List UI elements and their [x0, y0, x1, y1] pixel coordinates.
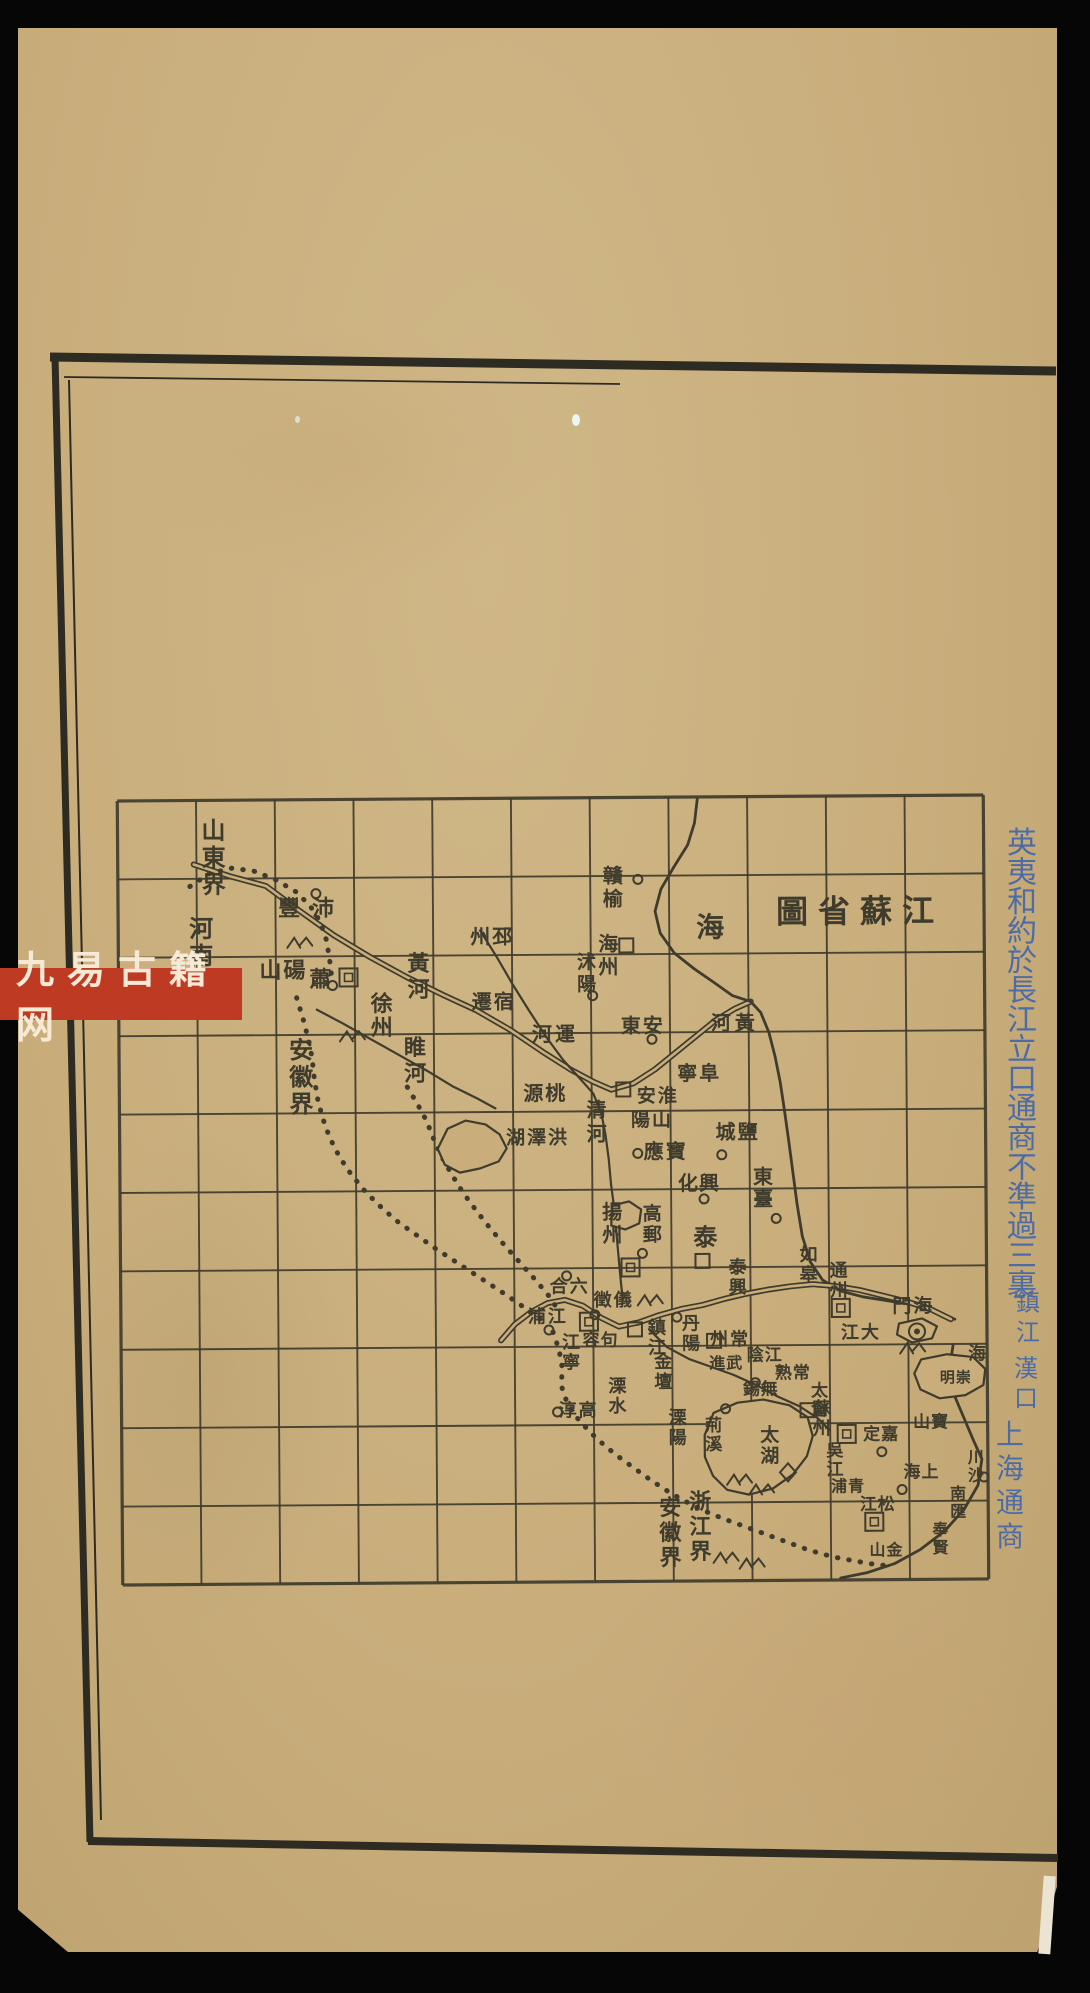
glyph: 泰	[727, 1256, 747, 1278]
place-label: 六合	[550, 1275, 588, 1297]
prefecture-box-inner	[870, 1518, 878, 1526]
glyph: 徽	[658, 1520, 682, 1546]
place-label: 高郵	[643, 1202, 662, 1246]
place-label: 奉賢	[931, 1520, 949, 1557]
town-circle	[672, 1313, 681, 1322]
glyph: 松	[878, 1494, 895, 1515]
place-label: 海	[696, 911, 724, 944]
glyph: 鎮	[1016, 1289, 1040, 1317]
place-label: 海門	[892, 1294, 932, 1317]
glyph: 蕭	[309, 967, 331, 992]
frame-top-rule	[50, 357, 1056, 371]
glyph: 江	[841, 1322, 859, 1343]
margin-note-column: 漢口	[1014, 1355, 1038, 1413]
glyph: 河	[408, 978, 430, 1003]
glyph: 漢	[1014, 1355, 1038, 1383]
town-circle	[898, 1485, 907, 1494]
glyph: 蘇	[811, 1398, 830, 1420]
glyph: 州	[470, 925, 490, 949]
glyph: 宿	[494, 989, 514, 1013]
glyph: 皋	[800, 1264, 819, 1286]
county-box	[619, 938, 633, 952]
map-title: 江蘇省圖	[776, 892, 934, 931]
glyph: 匯	[950, 1502, 966, 1521]
glyph: 吳	[826, 1441, 844, 1461]
glyph: 金	[653, 1351, 673, 1373]
province-map: 山東界河南界安徽界豐沛碭山蕭徐州邳州黃河睢河運河宿遷桃源洪澤湖清河贛榆海州沭陽海…	[117, 795, 989, 1585]
glyph: 寧	[562, 1351, 580, 1373]
place-label: 江寧	[562, 1332, 580, 1373]
glyph: 郵	[643, 1224, 662, 1246]
glyph: 桃	[545, 1081, 565, 1105]
place-label: 宿遷	[472, 989, 514, 1013]
glyph: 金	[885, 1540, 903, 1559]
glyph: 山	[869, 1540, 885, 1559]
place-label: 蕭	[309, 967, 331, 992]
place-label: 吳江	[826, 1441, 844, 1480]
glyph: 州	[812, 1419, 831, 1440]
glyph: 安	[637, 1084, 656, 1107]
glyph: 黃	[407, 951, 429, 977]
place-label: 丹陽	[682, 1313, 700, 1354]
glyph: 山	[259, 959, 281, 984]
place-label: 崇明	[940, 1368, 971, 1386]
glyph: 句	[600, 1330, 617, 1351]
frame-bottom-rule	[88, 1841, 1058, 1858]
grid-line-horizontal	[123, 1579, 989, 1585]
glyph: 界	[202, 871, 226, 899]
place-label: 通州	[828, 1260, 847, 1301]
town-circle	[772, 1214, 781, 1223]
glyph: 陰	[747, 1345, 765, 1366]
glyph: 太	[760, 1423, 780, 1446]
place-label: 碭山	[259, 959, 305, 984]
place-label: 川沙	[967, 1448, 984, 1485]
place-label: 寶應	[644, 1139, 686, 1163]
glyph: 明	[940, 1369, 955, 1387]
place-label: 淮安	[637, 1084, 677, 1107]
glyph: 州	[602, 1223, 622, 1247]
glyph: 上	[921, 1462, 938, 1482]
prefecture-box-inner	[344, 973, 352, 981]
glyph: 安	[659, 1495, 681, 1521]
glyph: 沭	[577, 952, 596, 974]
paper-speck	[572, 414, 580, 426]
glyph: 化	[678, 1171, 698, 1195]
glyph: 大	[861, 1321, 879, 1343]
lake-hongze	[438, 1120, 507, 1172]
place-label: 沛	[312, 896, 334, 921]
place-label: 東臺	[753, 1165, 773, 1211]
place-label: 武進	[709, 1353, 742, 1372]
place-label: 泰興	[727, 1256, 747, 1298]
glyph: 蘇	[860, 892, 892, 930]
place-label: 溧陽	[669, 1407, 688, 1449]
glyph: 山	[913, 1412, 930, 1432]
glyph: 鎮	[648, 1317, 666, 1339]
county-box	[695, 1254, 709, 1268]
glyph: 寶	[931, 1411, 948, 1432]
grid-line-horizontal	[120, 1187, 986, 1193]
place-label: 桃源	[523, 1081, 565, 1105]
glyph: 州	[709, 1329, 728, 1350]
glyph: 江	[689, 1515, 711, 1540]
glyph: 江	[548, 1306, 566, 1327]
glyph: 海	[968, 1342, 986, 1364]
place-label: 清河	[586, 1098, 606, 1146]
glyph: 應	[644, 1139, 664, 1163]
glyph: 州	[829, 1280, 848, 1301]
place-label: 海	[968, 1342, 986, 1364]
place-label: 洪澤湖	[506, 1127, 567, 1149]
place-label: 鹽城	[716, 1120, 758, 1144]
place-label: 贛榆	[603, 864, 624, 911]
place-label: 邳州	[470, 924, 512, 948]
paper-speck	[295, 416, 300, 423]
glyph: 江	[1016, 1319, 1040, 1347]
glyph: 奉	[931, 1520, 949, 1539]
grid-line-horizontal	[119, 1109, 985, 1115]
place-label: 青浦	[831, 1477, 864, 1496]
place-label: 運河	[532, 1022, 575, 1046]
glyph: 清	[586, 1098, 606, 1122]
glyph: 嘉	[880, 1424, 898, 1445]
glyph: 溧	[669, 1407, 688, 1429]
glyph: 崇	[956, 1368, 971, 1386]
glyph: 口	[1014, 1385, 1038, 1413]
glyph: 湖	[506, 1127, 525, 1149]
glyph: 興	[729, 1276, 747, 1298]
town-circle	[638, 1249, 647, 1258]
place-label: 興化	[678, 1171, 719, 1195]
place-label: 豐	[278, 897, 300, 922]
glyph: 源	[523, 1081, 543, 1105]
glyph: 城	[716, 1120, 736, 1144]
glyph: 浦	[528, 1306, 546, 1328]
place-label: 南匯	[950, 1484, 966, 1521]
glyph: 上	[996, 1418, 1024, 1451]
glyph: 進	[709, 1354, 725, 1373]
glyph: 寶	[666, 1139, 686, 1163]
glyph: 寧	[677, 1061, 697, 1085]
glyph: 青	[848, 1477, 864, 1496]
glyph: 安	[289, 1036, 313, 1064]
glyph: 通	[996, 1486, 1024, 1519]
glyph: 睢	[404, 1036, 426, 1061]
glyph: 定	[863, 1424, 880, 1445]
glyph: 容	[582, 1330, 599, 1351]
place-label: 嘉定	[863, 1424, 898, 1445]
glyph: 東	[753, 1165, 773, 1189]
glyph: 淳	[558, 1399, 576, 1421]
glyph: 高	[578, 1399, 596, 1421]
glyph: 浙	[689, 1490, 711, 1515]
glyph: 徵	[593, 1289, 613, 1311]
place-label: 上海	[903, 1461, 938, 1482]
glyph: 陽	[631, 1109, 650, 1131]
glyph: 州	[371, 1016, 393, 1041]
prefecture-box-inner	[843, 1430, 851, 1438]
glyph: 如	[799, 1244, 817, 1266]
place-label: 安東	[621, 1013, 663, 1037]
glyph: 賢	[932, 1538, 949, 1557]
glyph: 贛	[603, 864, 624, 888]
margin-note-column: 上海通商	[996, 1418, 1024, 1553]
hill-mark	[340, 1031, 365, 1041]
scanned-book-page: 山東界河南界安徽界豐沛碭山蕭徐州邳州黃河睢河運河宿遷桃源洪澤湖清河贛榆海州沭陽海…	[0, 0, 1090, 1993]
place-label: 海州	[598, 932, 618, 979]
grid-line-horizontal	[121, 1344, 987, 1350]
glyph: 臺	[753, 1187, 773, 1211]
map-grid	[117, 795, 988, 1585]
glyph: 榆	[603, 887, 624, 911]
glyph: 武	[726, 1353, 742, 1372]
place-label: 句容	[582, 1330, 617, 1351]
hill-mark	[638, 1295, 663, 1305]
prefecture-box-inner	[837, 1304, 845, 1312]
glyph: 邳	[491, 924, 512, 948]
glyph: 界	[689, 1540, 711, 1565]
margin-annotation: 英夷和約於長江立口通商不準過三裏鎮江漢口上海通商	[996, 826, 1040, 1553]
glyph: 商	[996, 1520, 1024, 1553]
place-label: 常熟	[775, 1362, 810, 1383]
glyph: 錫	[743, 1379, 760, 1400]
glyph: 沛	[312, 896, 334, 921]
place-label: 儀徵	[593, 1289, 632, 1311]
glyph: 陽	[577, 974, 596, 996]
glyph: 高	[643, 1202, 662, 1225]
glyph: 徽	[288, 1063, 314, 1091]
glyph: 水	[608, 1395, 627, 1417]
hill-mark	[714, 1553, 739, 1563]
glyph: 澤	[527, 1127, 546, 1149]
place-label: 阜寧	[677, 1061, 719, 1085]
glyph: 湖	[760, 1445, 779, 1467]
glyph: 州	[598, 955, 618, 979]
glyph: 鹽	[738, 1120, 758, 1144]
hill-mark	[287, 938, 312, 948]
town-circle	[633, 1149, 642, 1158]
place-label: 安徽界	[658, 1495, 683, 1571]
grid-line-horizontal	[122, 1501, 988, 1507]
place-label: 睢河	[404, 1036, 426, 1087]
glyph: 河	[587, 1122, 607, 1146]
glyph: 丹	[682, 1313, 700, 1334]
town-circle	[717, 1150, 726, 1159]
glyph: 荊	[704, 1415, 722, 1436]
glyph: 通	[829, 1260, 847, 1281]
place-label: 金山	[869, 1540, 903, 1559]
glyph: 河	[711, 1011, 731, 1035]
place-label: 蘇州	[811, 1398, 830, 1440]
glyph: 洪	[548, 1127, 567, 1149]
glyph: 江	[562, 1332, 580, 1353]
glyph: 門	[892, 1295, 911, 1317]
glyph: 阜	[699, 1061, 719, 1085]
place-label: 太湖	[760, 1423, 780, 1467]
grid-line-horizontal	[118, 952, 984, 958]
grid-line-horizontal	[121, 1265, 987, 1271]
place-label: 松江	[860, 1494, 895, 1515]
glyph: 儀	[613, 1289, 632, 1311]
glyph: 河	[532, 1022, 552, 1046]
place-label: 揚州	[602, 1200, 622, 1247]
place-label: 常州	[709, 1328, 748, 1350]
glyph: 黃	[735, 1011, 755, 1035]
glyph: 東	[621, 1014, 641, 1038]
glyph: 沙	[968, 1466, 984, 1485]
place-label: 黃河	[407, 951, 429, 1003]
prefecture-box	[865, 1513, 883, 1531]
glyph: 省	[818, 892, 850, 930]
place-label: 山東界	[201, 817, 226, 899]
glyph: 河	[404, 1062, 426, 1087]
glyph: 合	[550, 1275, 569, 1297]
town-circle	[877, 1447, 886, 1456]
place-label: 浙江界	[689, 1490, 712, 1565]
glyph: 泰	[693, 1223, 718, 1251]
glyph: 山	[201, 817, 225, 845]
place-label: 荊溪	[704, 1415, 723, 1455]
glyph: 常	[793, 1362, 810, 1383]
glyph: 遷	[472, 990, 492, 1014]
glyph: 川	[967, 1448, 984, 1467]
glyph: 興	[699, 1171, 719, 1195]
glyph: 南	[950, 1484, 966, 1503]
place-label: 沭陽	[577, 952, 596, 996]
place-label: 山陽	[631, 1109, 671, 1131]
glyph: 淮	[658, 1085, 677, 1107]
place-label: 金壇	[653, 1351, 673, 1393]
glyph: 揚	[602, 1200, 622, 1224]
glyph: 界	[659, 1546, 681, 1571]
glyph: 海	[913, 1294, 932, 1317]
place-label: 江浦	[528, 1305, 566, 1327]
margin-note-column: 鎮江	[1016, 1289, 1040, 1347]
glyph: 江	[860, 1495, 877, 1515]
glyph: 熟	[775, 1362, 792, 1383]
glyph: 運	[555, 1022, 575, 1046]
place-label: 安徽界	[288, 1036, 315, 1118]
watermark-banner: 九易古籍网	[0, 968, 242, 1020]
margin-note-column: 英夷和約於長江立口通商不準過三裏	[1007, 826, 1037, 1304]
glyph: 海	[696, 911, 724, 944]
glyph: 海	[598, 932, 618, 956]
town-circle	[700, 1194, 709, 1203]
grid-line-horizontal	[117, 795, 983, 801]
frame-top-inner-rule	[64, 377, 620, 384]
glyph: 陽	[682, 1333, 700, 1354]
place-label: 無錫	[743, 1379, 778, 1400]
glyph: 界	[289, 1090, 313, 1118]
glyph: 浦	[831, 1477, 847, 1496]
place-label: 泰	[693, 1223, 718, 1251]
glyph: 江	[902, 892, 934, 930]
glyph: 山	[652, 1109, 671, 1131]
glyph: 海	[996, 1452, 1024, 1485]
glyph: 六	[570, 1275, 588, 1297]
glyph: 圖	[776, 893, 808, 931]
glyph: 溧	[608, 1375, 627, 1397]
glyph: 東	[202, 844, 226, 872]
place-label: 溧水	[608, 1375, 627, 1417]
prefecture-box	[832, 1299, 850, 1317]
glyph: 海	[903, 1462, 920, 1483]
glyph: 豐	[278, 897, 300, 922]
place-label: 大江	[841, 1321, 879, 1343]
glyph: 徐	[370, 991, 393, 1017]
island-circle-dot	[914, 1328, 920, 1334]
grid-line-horizontal	[122, 1422, 988, 1428]
place-label: 如皋	[799, 1244, 818, 1286]
glyph: 常	[730, 1328, 748, 1350]
glyph: 壇	[654, 1371, 672, 1393]
place-label: 徐州	[370, 991, 393, 1041]
place-label: 寶山	[913, 1411, 948, 1432]
glyph: 碭	[283, 959, 305, 984]
glyph: 安	[643, 1013, 663, 1037]
glyph: 溪	[705, 1435, 723, 1455]
glyph: 陽	[669, 1428, 687, 1449]
